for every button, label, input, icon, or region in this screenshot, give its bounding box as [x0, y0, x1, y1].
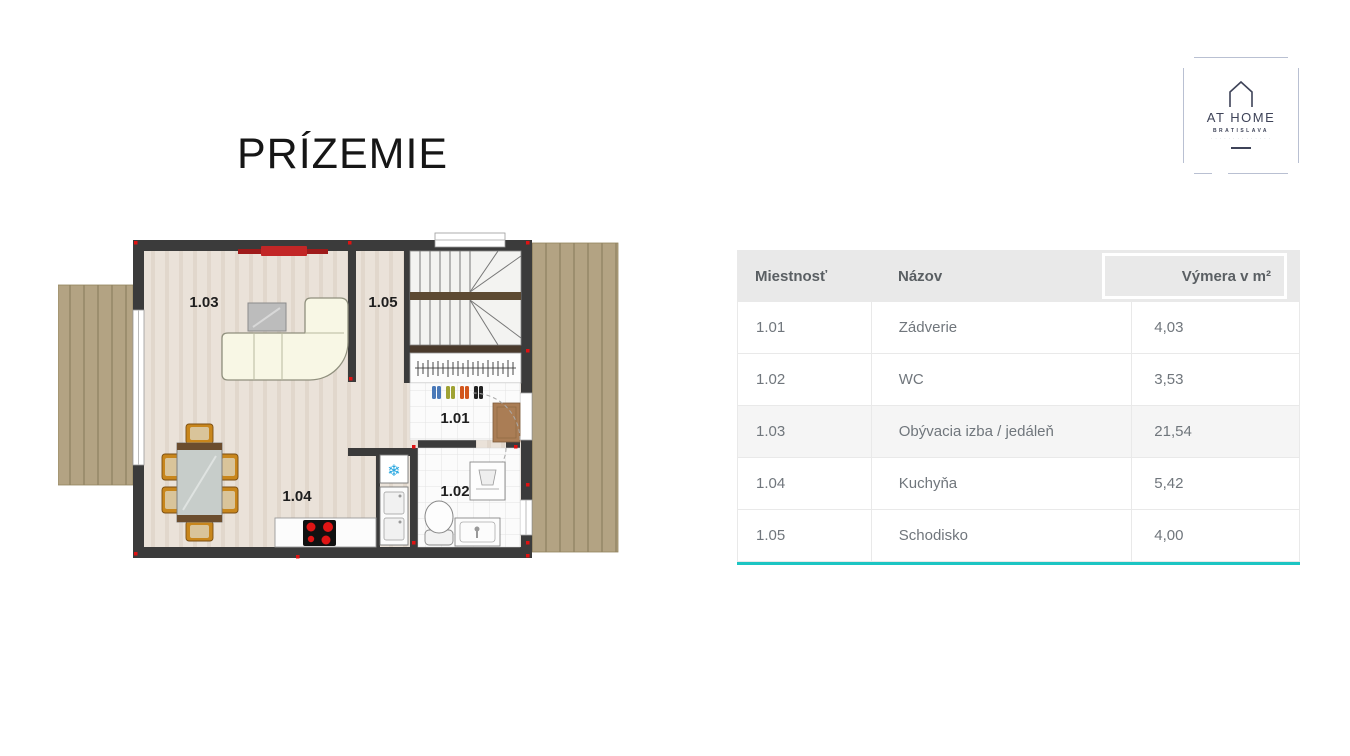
logo-frame-gap — [1180, 163, 1194, 177]
cell-room-name: Kuchyňa — [871, 458, 1132, 509]
left-terrace-deck — [58, 285, 133, 485]
window-left-wall — [133, 310, 144, 465]
cell-room-id: 1.05 — [738, 527, 871, 544]
entrance-door-opening — [520, 393, 532, 440]
tv-table — [248, 303, 286, 331]
toilet — [425, 501, 453, 545]
cell-room-id: 1.04 — [738, 475, 871, 492]
cell-room-area: 5,42 — [1131, 458, 1299, 509]
table-body: 1.01 Zádverie 4,03 1.02 WC 3,53 1.03 Obý… — [737, 302, 1300, 562]
staircase — [410, 251, 521, 345]
cell-room-name: Zádverie — [871, 302, 1132, 353]
cell-room-id: 1.01 — [738, 319, 871, 336]
company-logo: AT HOME BRATISLAVA · · · · · · · · · · ·… — [1183, 57, 1299, 174]
room-label-1-04: 1.04 — [282, 488, 312, 505]
table-header: Miestnosť Názov Výmera v m² — [737, 250, 1300, 302]
room-label-1-01: 1.01 — [440, 410, 469, 427]
room-label-1-03: 1.03 — [189, 294, 218, 311]
snowflake-icon: ❄ — [387, 463, 400, 480]
cell-room-name: WC — [871, 354, 1132, 405]
column-header-nazov[interactable]: Názov — [871, 268, 1132, 285]
radiator — [470, 462, 505, 500]
cell-room-area: 4,00 — [1131, 510, 1299, 561]
logo-brand-text: AT HOME — [1207, 110, 1276, 125]
cell-room-name: Obývacia izba / jedáleň — [871, 406, 1132, 457]
sink — [455, 518, 500, 546]
cell-room-area: 21,54 — [1131, 406, 1299, 457]
cell-room-id: 1.02 — [738, 371, 871, 388]
logo-city-text: BRATISLAVA — [1213, 128, 1269, 134]
column-header-vymera-label: Výmera v m² — [1182, 268, 1271, 285]
house-outline-icon — [1225, 80, 1257, 108]
logo-frame-gap — [1180, 54, 1194, 68]
table-row: 1.05 Schodisko 4,00 — [738, 510, 1299, 562]
table-row: 1.02 WC 3,53 — [738, 354, 1299, 406]
table-accent-bar — [737, 562, 1300, 565]
room-table: Miestnosť Názov Výmera v m² 1.01 Zádveri… — [737, 250, 1300, 565]
table-row: 1.04 Kuchyňa 5,42 — [738, 458, 1299, 510]
table-row: 1.01 Zádverie 4,03 — [738, 302, 1299, 354]
floor-plan: ❄ — [58, 230, 620, 565]
logo-divider — [1231, 147, 1251, 149]
cooktop — [303, 520, 336, 546]
chair — [186, 521, 213, 541]
cell-room-area: 3,53 — [1131, 354, 1299, 405]
entrance-mat — [493, 403, 520, 442]
chair — [186, 424, 213, 444]
room-label-1-05: 1.05 — [368, 294, 397, 311]
cell-room-name: Schodisko — [871, 510, 1132, 561]
wardrobe-hangers — [410, 353, 521, 383]
dining-table — [177, 443, 222, 522]
window-top-wall — [435, 233, 505, 247]
cell-room-area: 4,03 — [1131, 302, 1299, 353]
fridge: ❄ — [380, 455, 408, 545]
table-row: 1.03 Obývacia izba / jedáleň 21,54 — [738, 406, 1299, 458]
window-right-wall — [520, 500, 532, 535]
column-header-miestnost[interactable]: Miestnosť — [737, 268, 871, 285]
right-terrace-deck — [532, 243, 618, 552]
logo-frame-gap — [1288, 163, 1302, 177]
cell-room-id: 1.03 — [738, 423, 871, 440]
column-header-vymera[interactable]: Výmera v m² — [1102, 253, 1287, 299]
logo-frame-gap — [1212, 170, 1228, 176]
logo-fine-print: · · · · · · · · · · · · · · — [1211, 136, 1271, 141]
room-label-1-02: 1.02 — [440, 483, 469, 500]
page-title: PRÍZEMIE — [237, 130, 448, 179]
logo-frame-gap — [1288, 54, 1302, 68]
